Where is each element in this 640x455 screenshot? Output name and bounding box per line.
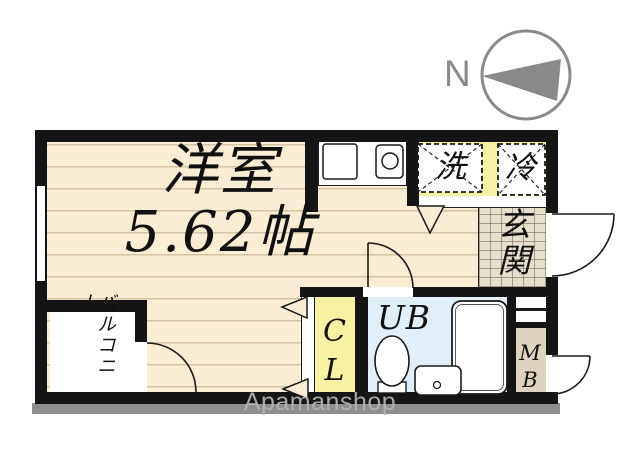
unit-bath-label: UB	[377, 301, 431, 334]
stove-burner-icon	[376, 145, 403, 178]
opening-marker-hall-icon	[417, 206, 444, 233]
compass-north-label: N	[444, 53, 471, 95]
entrance-door-swing-icon	[552, 214, 614, 276]
meter-box-label: MB	[519, 341, 540, 395]
main-room-label: 洋室 5.62帖	[80, 140, 360, 264]
main-room-area: 5.62帖	[80, 202, 360, 264]
closet-door-marker-top-icon	[282, 297, 307, 318]
compass-icon	[482, 31, 570, 119]
toilet-icon	[375, 336, 409, 393]
closet-label: CL	[319, 314, 349, 392]
bath-door-swing-icon	[368, 243, 413, 288]
washer-label: 洗	[435, 152, 466, 183]
balcony-door-swing-icon	[147, 343, 196, 392]
main-room-name: 洋室	[80, 140, 360, 202]
floor-plan: 洋室 5.62帖 バルコニー 玄関 CL UB MB 洗 冷 N Apamans…	[0, 0, 640, 455]
fridge-label: 冷	[505, 153, 536, 184]
balcony-label: バルコニー	[76, 293, 114, 395]
meter-box-door-swing-icon	[552, 356, 590, 394]
entrance-label: 玄関	[495, 207, 528, 279]
watermark-text: Apamanshop	[160, 388, 480, 417]
